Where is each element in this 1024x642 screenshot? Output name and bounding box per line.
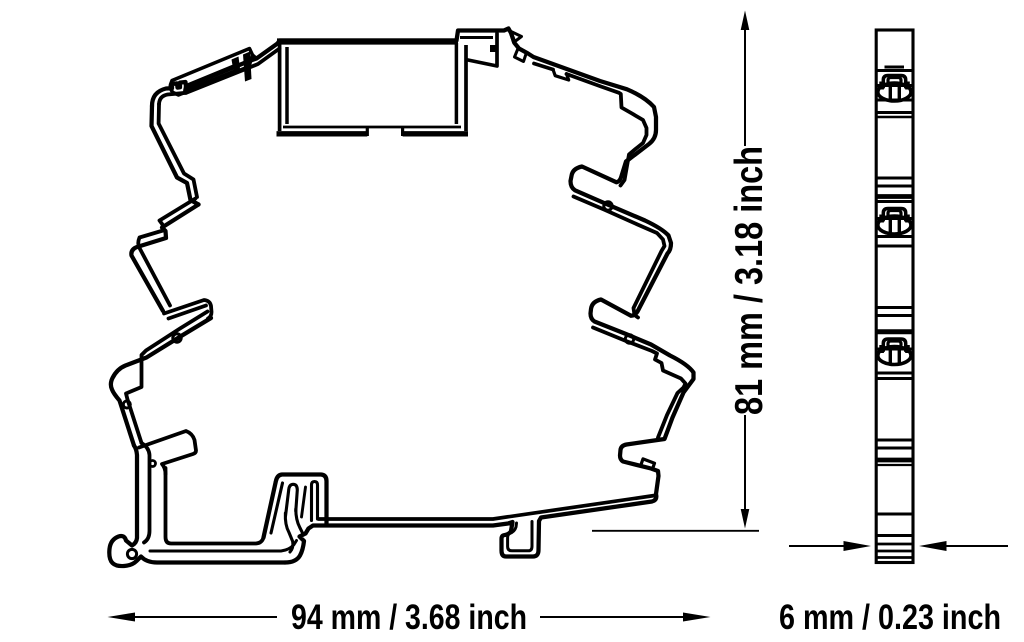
svg-text:94 mm / 3.68 inch: 94 mm / 3.68 inch [291,598,527,637]
svg-text:6 mm / 0.23 inch: 6 mm / 0.23 inch [779,598,1001,637]
svg-text:81 mm / 3.18 inch: 81 mm / 3.18 inch [728,146,771,415]
